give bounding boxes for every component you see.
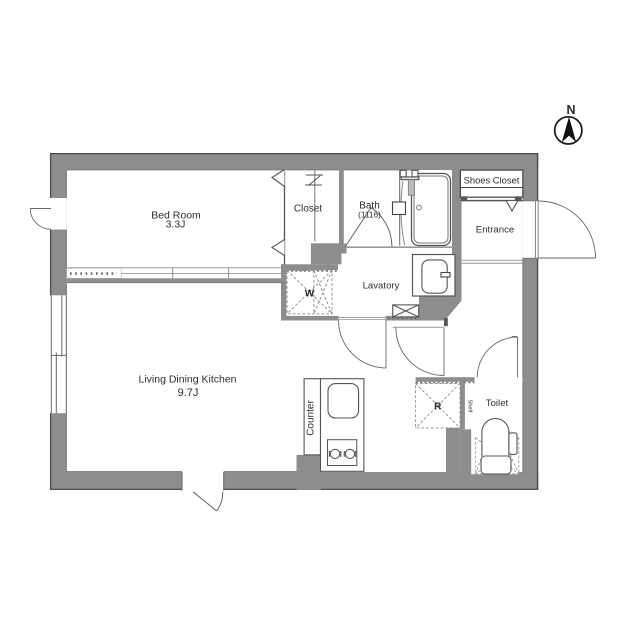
svg-text:9.7J: 9.7J [178, 387, 199, 399]
svg-text:R: R [434, 402, 442, 413]
svg-text:Entrance: Entrance [476, 224, 514, 235]
svg-text:N: N [566, 103, 575, 117]
svg-text:3.3J: 3.3J [166, 218, 186, 230]
svg-text:Lavatory: Lavatory [363, 281, 400, 292]
svg-text:W: W [305, 289, 315, 300]
svg-text:Shoes Closet: Shoes Closet [464, 174, 520, 185]
svg-text:Toilet: Toilet [486, 398, 509, 409]
svg-text:(1116): (1116) [358, 209, 381, 219]
svg-text:Closet: Closet [294, 204, 323, 215]
svg-text:Counter: Counter [305, 400, 316, 436]
svg-text:Living Dining Kitchen: Living Dining Kitchen [138, 374, 236, 386]
svg-text:Shelf: Shelf [466, 400, 472, 413]
